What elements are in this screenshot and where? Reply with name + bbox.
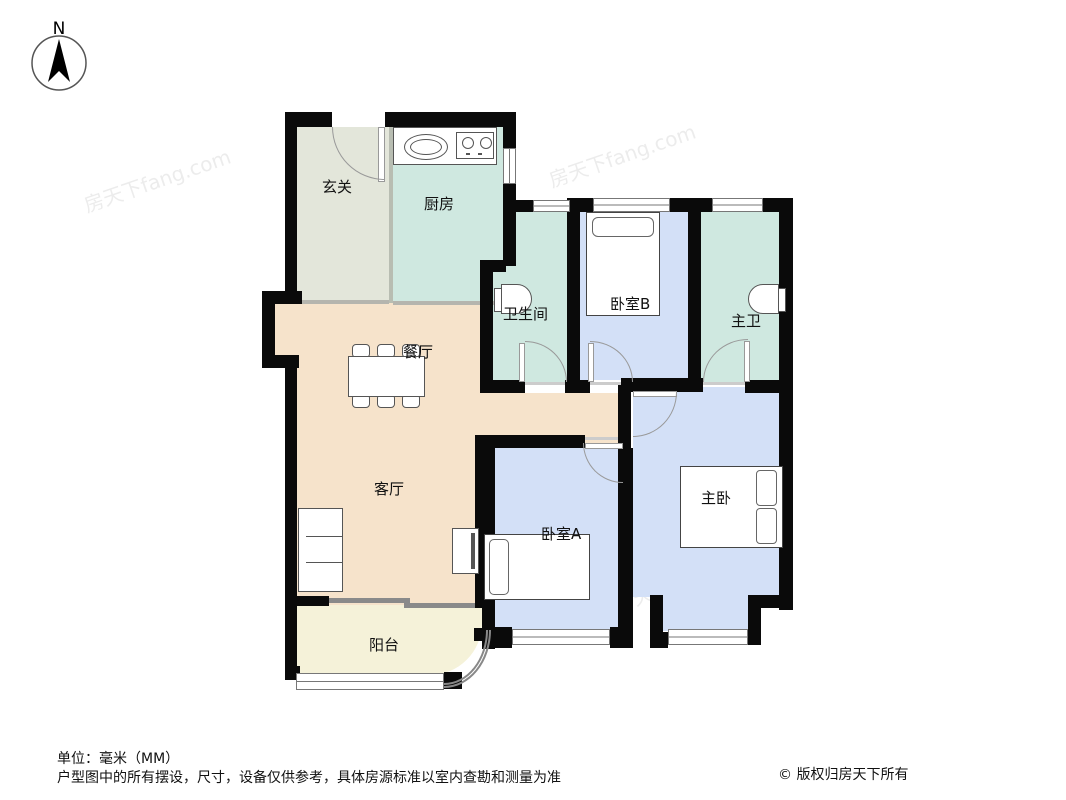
- room-bathroom: [516, 212, 567, 266]
- wall: [779, 198, 793, 610]
- stove-knob-icon: [478, 153, 482, 155]
- disclaimer-text: 户型图中的所有摆设，尺寸，设备仅供参考，具体房源标准以室内查勘和测量为准: [57, 767, 561, 787]
- window: [668, 629, 748, 645]
- window: [512, 629, 610, 645]
- room-living-dining: [275, 304, 299, 355]
- sliding-door: [404, 603, 486, 608]
- label-master-bath: 主卫: [731, 313, 761, 330]
- stove-burner-icon: [480, 137, 492, 149]
- floor-plan-page: N 房天下fang.com 房天下fang.com 房天下fang.com 房天…: [0, 0, 1066, 800]
- unit-note: 单位：毫米（MM）: [57, 748, 179, 768]
- wall: [285, 355, 297, 607]
- sofa: [306, 536, 342, 537]
- window: [533, 200, 570, 212]
- toilet-icon: [778, 288, 786, 312]
- wall: [503, 112, 516, 148]
- wall: [285, 112, 297, 304]
- watermark: 房天下fang.com: [544, 116, 699, 193]
- window: [712, 198, 763, 212]
- sofa: [306, 562, 342, 563]
- label-foyer: 玄关: [322, 179, 352, 196]
- stove-burner-icon: [462, 137, 474, 149]
- dining-table: [348, 356, 425, 397]
- threshold: [590, 382, 621, 385]
- wall: [503, 200, 533, 212]
- sliding-door: [326, 598, 410, 603]
- wall: [618, 385, 631, 448]
- threshold: [583, 437, 623, 440]
- sink-icon: [410, 139, 442, 155]
- wall: [610, 627, 633, 648]
- room-master-bedroom: [663, 595, 748, 631]
- label-kitchen: 厨房: [424, 196, 454, 213]
- wall: [480, 262, 493, 393]
- pillow-icon: [756, 508, 777, 544]
- window: [296, 673, 444, 690]
- label-balcony: 阳台: [369, 637, 399, 654]
- copyright-text: © 版权归房天下所有: [778, 764, 908, 784]
- label-bedroom-a: 卧室A: [541, 526, 581, 543]
- wall: [297, 300, 389, 304]
- wall: [565, 380, 590, 393]
- pillow-icon: [489, 539, 509, 595]
- pillow-icon: [756, 470, 777, 506]
- label-living: 客厅: [374, 481, 404, 498]
- wall: [503, 184, 516, 266]
- pillow-icon: [592, 217, 654, 237]
- watermark: 房天下fang.com: [79, 141, 234, 218]
- wall: [745, 380, 792, 393]
- sofa: [298, 508, 343, 592]
- label-bedroom-b: 卧室B: [610, 296, 650, 313]
- wall: [650, 632, 668, 648]
- wall: [567, 210, 580, 382]
- toilet-icon: [748, 284, 779, 314]
- label-master-bedroom: 主卧: [701, 490, 731, 507]
- wall: [621, 378, 703, 392]
- curved-balcony-window: [444, 630, 491, 688]
- wall: [285, 596, 329, 606]
- window: [593, 198, 670, 212]
- threshold: [525, 382, 567, 385]
- wall: [385, 112, 515, 127]
- wall: [748, 595, 761, 645]
- label-bathroom: 卫生间: [503, 306, 548, 323]
- compass-north-icon: N: [24, 8, 94, 100]
- wall: [688, 210, 701, 382]
- window: [503, 148, 516, 184]
- threshold: [703, 382, 745, 385]
- tv-icon: [471, 533, 475, 569]
- label-dining: 餐厅: [403, 344, 433, 361]
- stove-knob-icon: [466, 153, 470, 155]
- compass-n-label: N: [53, 19, 66, 39]
